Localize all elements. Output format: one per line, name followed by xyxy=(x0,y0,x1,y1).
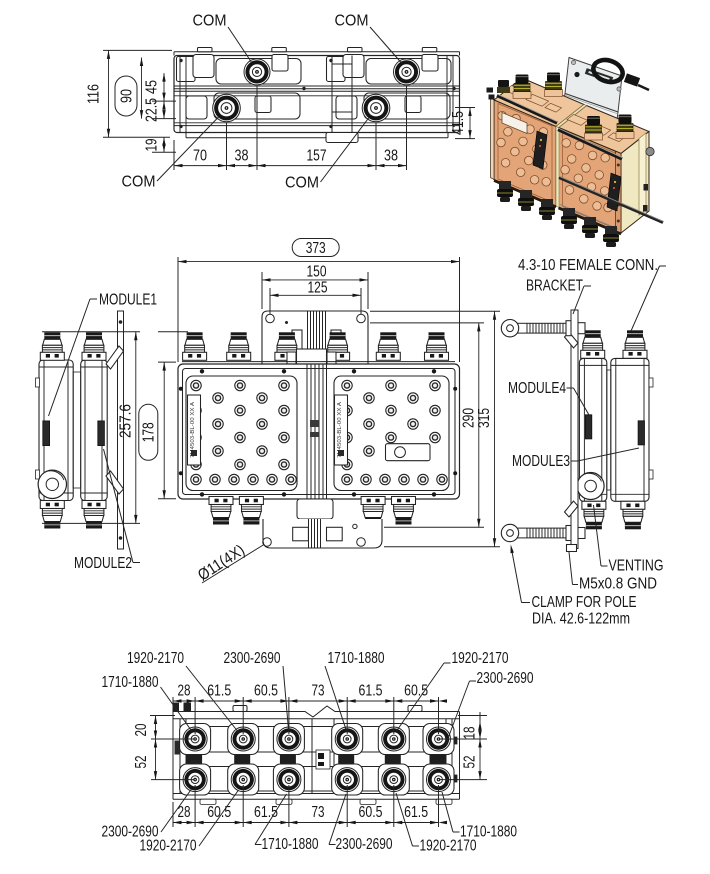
svg-text:VENTING: VENTING xyxy=(609,558,664,575)
svg-text:BRACKET: BRACKET xyxy=(526,278,583,295)
svg-text:52: 52 xyxy=(462,755,479,768)
svg-text:315: 315 xyxy=(476,408,493,428)
svg-text:COM: COM xyxy=(285,175,319,192)
svg-text:1710-1880: 1710-1880 xyxy=(102,674,159,691)
svg-text:1710-1880: 1710-1880 xyxy=(328,650,385,667)
svg-text:61.5: 61.5 xyxy=(359,683,383,700)
svg-text:45: 45 xyxy=(144,80,161,94)
svg-text:COM: COM xyxy=(335,13,369,30)
svg-text:41.5: 41.5 xyxy=(450,111,467,135)
svg-text:COM: COM xyxy=(122,174,156,191)
svg-text:MODULE1: MODULE1 xyxy=(99,292,157,309)
svg-text:1920-2170: 1920-2170 xyxy=(452,650,509,667)
svg-text:73: 73 xyxy=(312,683,325,700)
svg-text:257.6: 257.6 xyxy=(117,404,134,438)
svg-text:18: 18 xyxy=(462,726,479,739)
svg-text:90: 90 xyxy=(119,89,136,103)
svg-text:1710-1880: 1710-1880 xyxy=(262,836,319,853)
svg-text:7M4503-BL-00 XX A: 7M4503-BL-00 XX A xyxy=(337,401,343,458)
svg-text:2300-2690: 2300-2690 xyxy=(336,836,393,853)
svg-text:70: 70 xyxy=(193,148,207,165)
svg-text:28: 28 xyxy=(178,683,191,700)
svg-text:COM: COM xyxy=(193,13,227,30)
svg-text:M5x0.8 GND: M5x0.8 GND xyxy=(579,576,657,593)
svg-text:1710-1880: 1710-1880 xyxy=(460,824,517,841)
svg-text:4.3-10 FEMALE CONN.: 4.3-10 FEMALE CONN. xyxy=(518,257,658,274)
svg-text:MODULE4: MODULE4 xyxy=(508,380,566,397)
svg-text:20: 20 xyxy=(133,723,150,736)
svg-text:290: 290 xyxy=(461,408,478,428)
svg-text:178: 178 xyxy=(140,422,157,442)
svg-text:DIA. 42.6-122mm: DIA. 42.6-122mm xyxy=(532,611,630,628)
svg-text:1920-2170: 1920-2170 xyxy=(127,650,184,667)
svg-text:MODULE2: MODULE2 xyxy=(74,555,132,572)
svg-text:38: 38 xyxy=(235,148,249,165)
svg-text:125: 125 xyxy=(308,280,328,297)
svg-text:52: 52 xyxy=(133,755,150,768)
svg-text:CLAMP FOR POLE: CLAMP FOR POLE xyxy=(532,594,637,611)
svg-text:60.5: 60.5 xyxy=(254,683,278,700)
svg-text:19: 19 xyxy=(144,138,161,151)
svg-text:2300-2690: 2300-2690 xyxy=(477,670,534,687)
svg-text:61.5: 61.5 xyxy=(404,804,428,821)
svg-text:7M4503-BL-00 XX A: 7M4503-BL-00 XX A xyxy=(190,401,196,458)
svg-text:MODULE3: MODULE3 xyxy=(512,453,570,470)
svg-text:373: 373 xyxy=(306,240,326,257)
svg-text:60.5: 60.5 xyxy=(359,804,383,821)
svg-text:73: 73 xyxy=(312,804,325,821)
svg-text:157: 157 xyxy=(307,148,327,165)
svg-text:116: 116 xyxy=(86,84,103,104)
svg-text:38: 38 xyxy=(384,148,398,165)
svg-text:2300-2690: 2300-2690 xyxy=(224,650,281,667)
svg-text:150: 150 xyxy=(307,264,327,281)
svg-text:1920-2170: 1920-2170 xyxy=(140,838,197,855)
svg-text:60.5: 60.5 xyxy=(207,804,231,821)
